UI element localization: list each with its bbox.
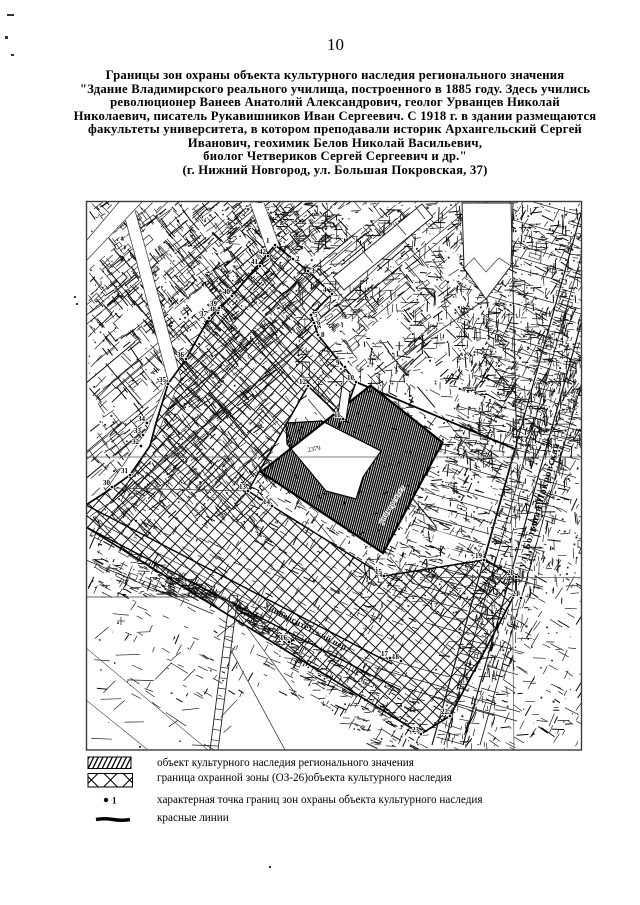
svg-text:2: 2 <box>296 255 300 263</box>
svg-text:33: 33 <box>134 427 142 435</box>
svg-text:4: 4 <box>323 286 327 294</box>
svg-text:1: 1 <box>266 237 270 245</box>
svg-text:граница охранной зоны (ОЗ-26)о: граница охранной зоны (ОЗ-26)объекта кул… <box>157 772 452 784</box>
svg-text:40: 40 <box>223 288 231 296</box>
svg-text:41: 41 <box>251 258 259 266</box>
svg-text:1: 1 <box>112 796 117 806</box>
svg-text:15: 15 <box>375 568 383 576</box>
svg-text:9: 9 <box>336 359 340 367</box>
svg-text:14: 14 <box>263 498 271 506</box>
svg-text:характерная точка границ зон о: характерная точка границ зон охраны объе… <box>157 794 483 806</box>
svg-text:22: 22 <box>441 708 449 716</box>
svg-text:42: 42 <box>259 248 267 256</box>
svg-text:21: 21 <box>512 590 520 598</box>
svg-text:19: 19 <box>475 552 483 560</box>
svg-text:8: 8 <box>321 331 325 339</box>
svg-text:23: 23 <box>412 726 420 734</box>
svg-text:36: 36 <box>177 351 185 359</box>
svg-text:39: 39 <box>210 300 218 308</box>
svg-text:30: 30 <box>103 479 111 487</box>
svg-text:10: 10 <box>347 374 355 382</box>
svg-text:ул. Большая Покровская: ул. Большая Покровская <box>516 441 562 568</box>
svg-text:объект культурного наследия ре: объект культурного наследия региональног… <box>157 757 414 769</box>
svg-text:красные линии: красные линии <box>157 812 229 824</box>
svg-text:37: 37 <box>200 310 208 318</box>
svg-text:35: 35 <box>159 376 167 384</box>
svg-text:32: 32 <box>132 438 140 446</box>
svg-text:31: 31 <box>121 467 129 475</box>
svg-text:16: 16 <box>280 634 288 642</box>
svg-text:3: 3 <box>311 267 315 275</box>
svg-text:34: 34 <box>138 415 146 423</box>
svg-text:6: 6 <box>317 319 321 327</box>
svg-text:13: 13 <box>239 483 247 491</box>
svg-text:11: 11 <box>334 411 341 419</box>
svg-text:5: 5 <box>314 311 318 319</box>
svg-text:20: 20 <box>507 569 515 577</box>
svg-text:12: 12 <box>299 378 307 386</box>
svg-text:17: 17 <box>381 650 389 658</box>
svg-text:18: 18 <box>392 653 400 661</box>
